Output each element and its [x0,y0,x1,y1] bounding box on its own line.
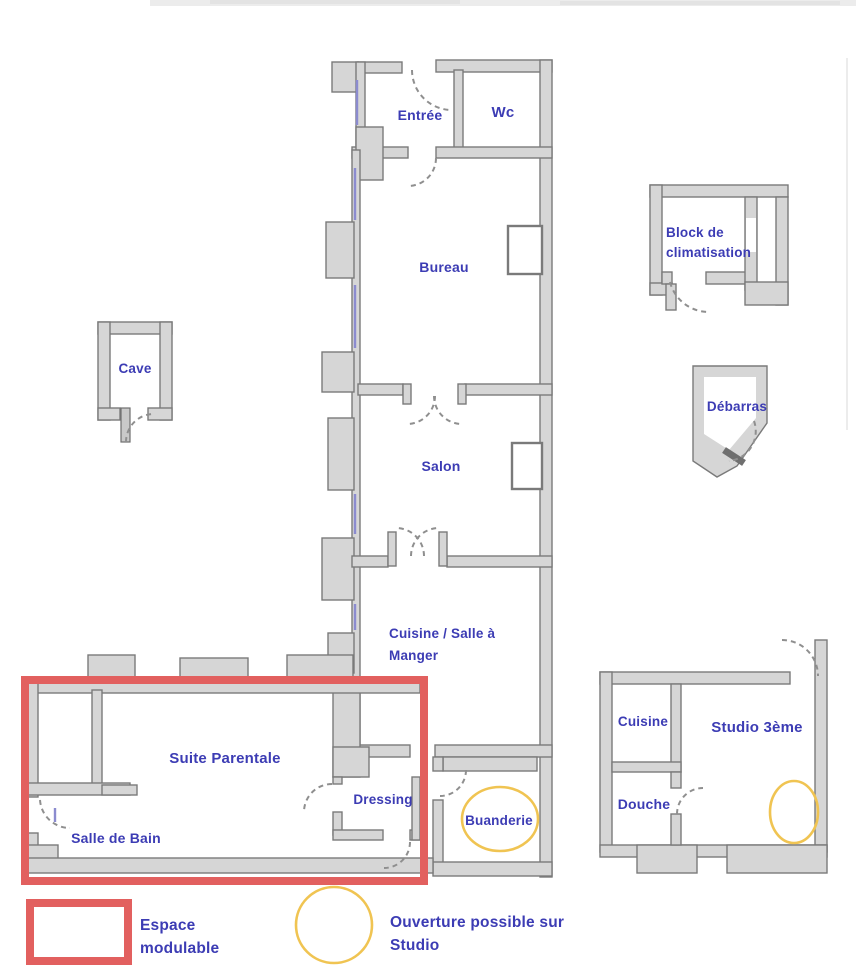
label-cuisine-salle-line2: Manger [389,648,439,663]
label-block-clim-line1: Block de [666,225,724,240]
label-salle-de-bain: Salle de Bain [71,830,161,846]
legend-espace-line2: modulable [140,940,219,957]
label-block-clim-line2: climatisation [666,245,751,260]
espace-modulable-overlay [25,680,424,881]
label-cuisine-salle-line1: Cuisine / Salle à [389,626,495,641]
legend-ouverture-swatch [296,887,372,963]
label-wc: Wc [492,104,515,121]
label-studio: Studio 3ème [711,719,802,736]
label-bureau: Bureau [419,259,468,275]
legend-ouverture-line2: Studio [390,937,439,954]
room-labels: Entrée Wc Bureau Salon Cuisine / Salle à… [71,104,803,846]
label-buanderie: Buanderie [465,813,533,828]
floor-plan-canvas: Entrée Wc Bureau Salon Cuisine / Salle à… [0,0,856,968]
label-debarras: Débarras [707,399,767,414]
label-dressing: Dressing [353,792,412,807]
legend-ouverture-line1: Ouverture possible sur [390,914,564,931]
floor-plan-page: Entrée Wc Bureau Salon Cuisine / Salle à… [0,0,856,968]
legend-espace-line1: Espace [140,917,196,934]
label-entree: Entrée [398,107,443,123]
label-salon: Salon [421,458,460,474]
studio-walls [600,640,827,873]
debarras-walls [693,366,767,477]
label-studio-cuisine: Cuisine [618,714,668,729]
legend-espace-modulable-swatch [30,903,128,961]
cave-walls [98,322,172,442]
opening-marker-studio [770,781,818,843]
label-cave: Cave [118,361,151,376]
label-douche: Douche [618,796,671,812]
label-suite-parentale: Suite Parentale [169,750,280,767]
window-niches [508,226,542,489]
legend: Espace modulable Ouverture possible sur … [30,887,564,963]
